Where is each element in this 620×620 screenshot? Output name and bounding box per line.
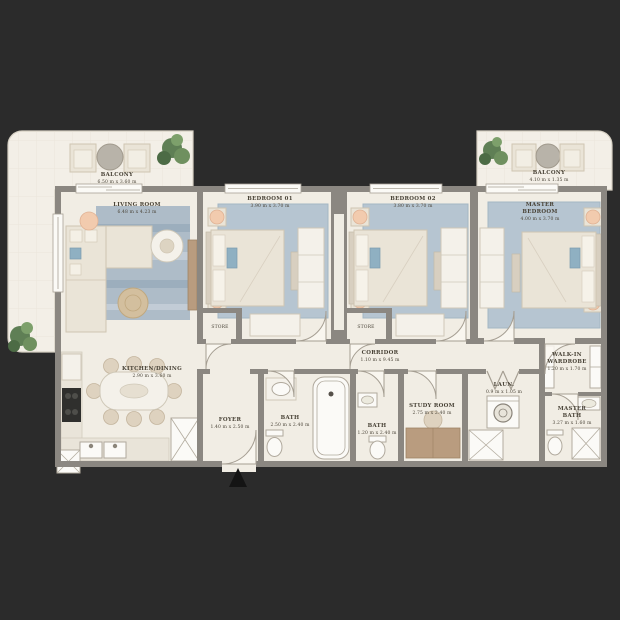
floor-lamp-icon xyxy=(80,212,98,230)
label-corridor-dims: 1.10 m x 9.45 m xyxy=(360,357,400,363)
dresser xyxy=(250,314,300,336)
tv-console xyxy=(188,240,197,310)
window-master-slider xyxy=(486,184,558,193)
bathtub-icon xyxy=(313,377,349,459)
room-bedroom1 xyxy=(206,204,328,318)
label-kitchen-name: KITCHEN/DINING xyxy=(122,366,182,372)
bed-bench xyxy=(512,254,520,292)
label-bedroom2-name: BEDROOM 02 xyxy=(390,196,436,202)
fridge xyxy=(62,354,81,380)
label-masterbath-dims: 3.27 m x 1.60 m xyxy=(552,420,592,426)
label-master-name2: BEDROOM xyxy=(522,209,557,215)
label-living-name: LIVING ROOM xyxy=(113,202,161,208)
toilet-icon xyxy=(266,430,283,457)
label-bath2-name: BATH xyxy=(368,423,387,429)
lamp-icon xyxy=(586,210,600,224)
label-balcony-right-dims: 4.10 m x 1.35 m xyxy=(529,177,569,183)
toilet-icon xyxy=(369,436,386,459)
window-living-left xyxy=(53,214,63,292)
label-foyer-name: FOYER xyxy=(219,417,242,423)
label-walkin-name2: WARDROBE xyxy=(546,359,586,365)
balcony-round-table xyxy=(536,144,560,168)
wardrobe xyxy=(480,228,504,308)
label-study-dims: 2.75 m x 2.40 m xyxy=(412,410,452,416)
label-bath2-dims: 1.20 m x 2.40 m xyxy=(357,430,397,436)
label-balcony-left-name: BALCONY xyxy=(101,172,133,178)
washing-machine-icon xyxy=(487,396,519,428)
closet-box xyxy=(469,430,503,460)
balcony-right: BALCONY 4.10 m x 1.35 m xyxy=(477,131,612,190)
label-laundry-name: LAUN. xyxy=(494,382,515,388)
toilet-icon xyxy=(547,430,563,455)
label-bedroom2-dims: 3.80 m x 3.70 m xyxy=(393,203,433,209)
label-master-dims: 4.00 m x 3.70 m xyxy=(520,216,560,222)
shower-icon xyxy=(572,428,600,459)
wardrobe xyxy=(441,228,467,308)
floor-plan-stage: BALCONY 6.50 m x 3.60 m BALCONY 4.10 m x… xyxy=(0,0,620,620)
lamp-icon xyxy=(353,210,367,224)
label-balcony-right-name: BALCONY xyxy=(533,170,565,176)
label-master-name: MASTER xyxy=(526,202,555,208)
floor-plan: BALCONY 6.50 m x 3.60 m BALCONY 4.10 m x… xyxy=(0,0,620,620)
label-foyer-dims: 1.40 m x 2.50 m xyxy=(210,424,250,430)
label-bath1-dims: 2.50 m x 2.40 m xyxy=(270,422,310,428)
balcony-armchair xyxy=(560,144,584,171)
label-study-name: STUDY ROOM xyxy=(409,403,455,409)
label-masterbath-name: MASTER xyxy=(558,406,587,412)
sink-icon xyxy=(272,383,290,396)
window-living-slider xyxy=(76,184,142,193)
wardrobe xyxy=(298,228,324,308)
balcony-armchair xyxy=(70,144,96,172)
stove xyxy=(62,388,81,422)
label-bath1-name: BATH xyxy=(281,415,300,421)
label-masterbath-name2: BATH xyxy=(563,413,582,419)
label-laundry-dims: 0.9 m x 1.05 m xyxy=(486,389,523,395)
room-bedroom2 xyxy=(349,204,468,318)
dresser xyxy=(396,314,444,336)
balcony-armchair xyxy=(512,144,536,171)
label-walkin-dims: 1.20 m x 1.70 m xyxy=(547,366,587,372)
label-living-dims: 6.48 m x 4.23 m xyxy=(117,209,157,215)
balcony-round-table xyxy=(97,144,123,170)
bed xyxy=(512,232,601,308)
label-store2: STORE xyxy=(357,324,374,330)
foyer-closet xyxy=(171,418,199,461)
window-bedroom1 xyxy=(225,184,301,193)
balcony-armchair xyxy=(124,144,150,172)
label-bedroom1-name: BEDROOM 01 xyxy=(247,196,293,202)
label-kitchen-dims: 2.90 m x 3.60 m xyxy=(132,373,172,379)
room-living xyxy=(66,206,197,332)
window-bedroom2 xyxy=(370,184,442,193)
jute-pouf xyxy=(118,288,148,318)
label-walkin-name: WALK-IN xyxy=(551,352,582,358)
label-corridor-name: CORRIDOR xyxy=(362,350,399,356)
label-bedroom1-dims: 3.90 m x 3.70 m xyxy=(250,203,290,209)
lamp-icon xyxy=(210,210,224,224)
label-store1: STORE xyxy=(211,324,228,330)
